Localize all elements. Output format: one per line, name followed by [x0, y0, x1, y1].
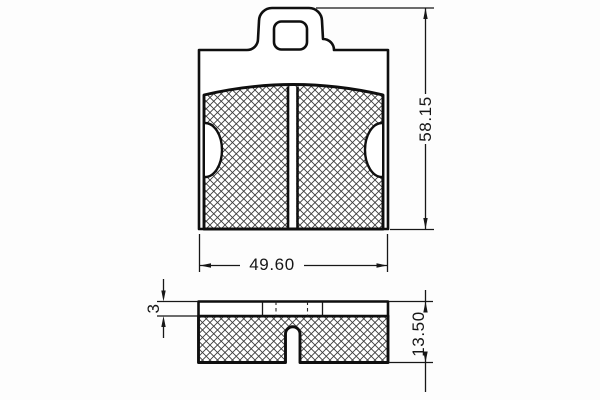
profile-view [199, 302, 389, 363]
center-groove [289, 87, 296, 228]
dimension-total-thickness: 13.50 [389, 290, 433, 392]
extension-lines [157, 302, 198, 317]
arrowhead-down [161, 291, 165, 302]
front-view [199, 8, 388, 229]
dimension-label-backplate: 3 [144, 303, 163, 313]
arrowhead-up [423, 8, 427, 19]
tab-hole [274, 22, 307, 50]
arrowhead-up [161, 316, 165, 327]
dimension-label-total: 13.50 [409, 311, 428, 357]
arrowhead-left [200, 263, 211, 267]
backplate-strip [199, 302, 389, 317]
friction-material-profile [199, 316, 389, 363]
arrowhead-up [423, 302, 427, 313]
brake-pad-drawing: 58.15 49.60 3 13.50 [0, 0, 600, 400]
dimension-pad-width: 49.60 [200, 234, 388, 274]
arrowhead-right [377, 263, 388, 267]
arrowhead-down [423, 218, 427, 229]
technical-drawing-canvas: 58.15 49.60 3 13.50 [0, 0, 600, 400]
dimension-label-width: 49.60 [249, 255, 295, 274]
dimension-backplate-thickness: 3 [144, 279, 198, 338]
dimension-label-height: 58.15 [416, 96, 435, 142]
